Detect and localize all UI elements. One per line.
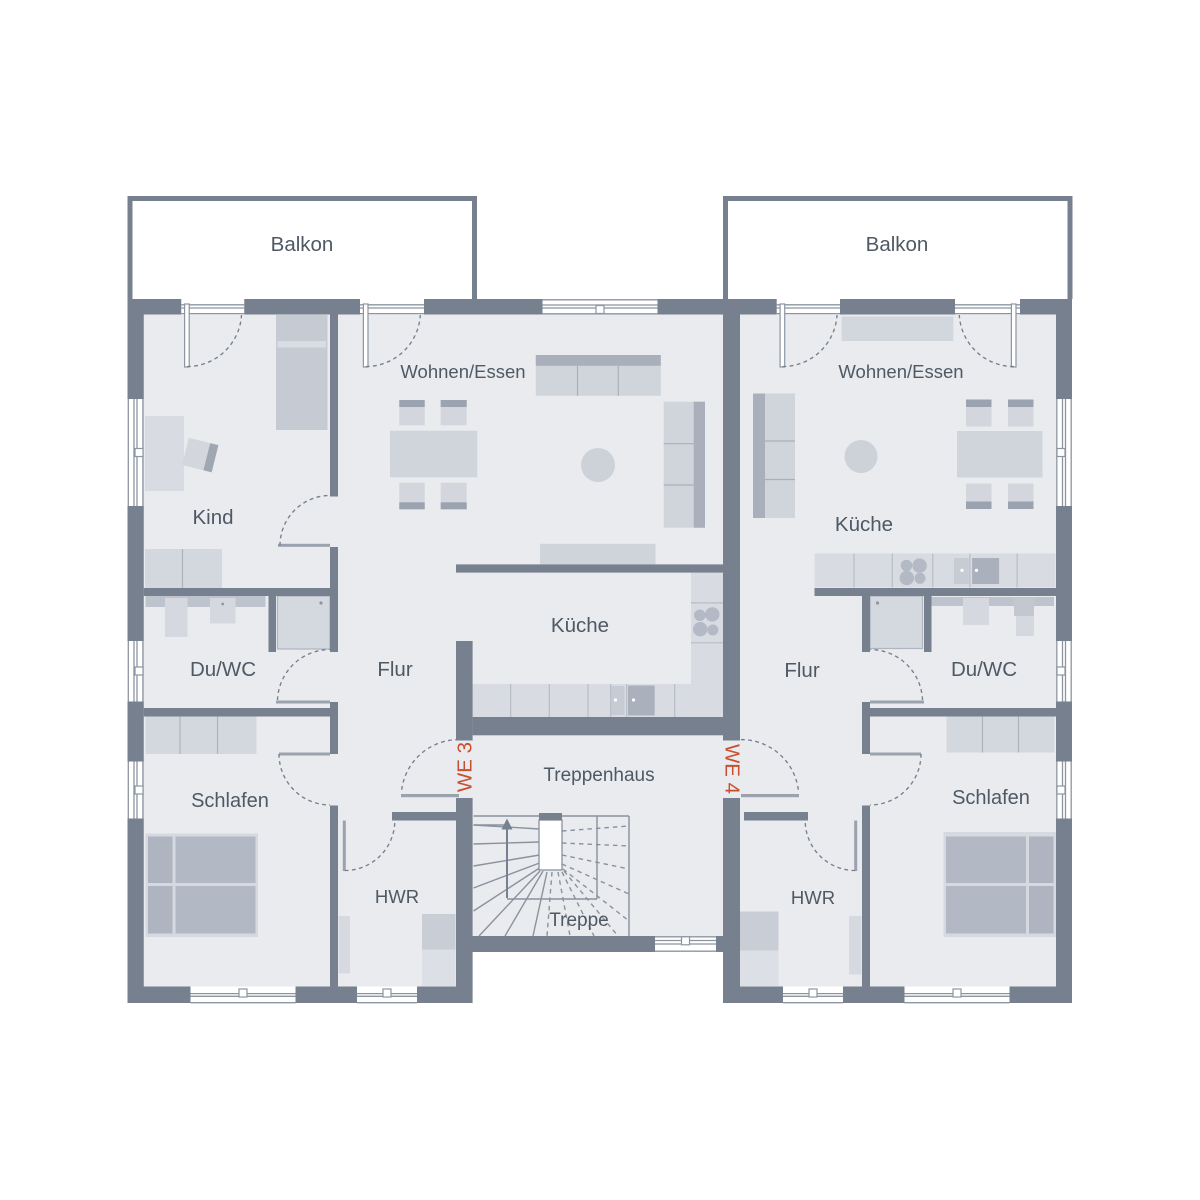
svg-text:Du/WC: Du/WC xyxy=(190,658,256,681)
svg-text:Balkon: Balkon xyxy=(866,233,929,256)
svg-text:Treppe: Treppe xyxy=(549,910,609,931)
svg-text:WE 4: WE 4 xyxy=(721,744,744,794)
svg-text:Du/WC: Du/WC xyxy=(951,658,1017,681)
svg-text:HWR: HWR xyxy=(375,886,419,907)
svg-text:Flur: Flur xyxy=(784,659,819,682)
svg-text:Kind: Kind xyxy=(192,506,233,529)
svg-text:HWR: HWR xyxy=(791,887,835,908)
svg-text:Flur: Flur xyxy=(377,658,412,681)
svg-text:Schlafen: Schlafen xyxy=(952,787,1030,809)
svg-text:WE 3: WE 3 xyxy=(454,742,477,792)
svg-text:Küche: Küche xyxy=(551,614,609,637)
svg-text:Balkon: Balkon xyxy=(271,233,334,256)
svg-text:Schlafen: Schlafen xyxy=(191,790,269,812)
svg-text:Treppenhaus: Treppenhaus xyxy=(543,765,654,786)
svg-text:Wohnen/Essen: Wohnen/Essen xyxy=(400,361,525,382)
svg-text:Wohnen/Essen: Wohnen/Essen xyxy=(838,361,963,382)
svg-text:Küche: Küche xyxy=(835,513,893,536)
